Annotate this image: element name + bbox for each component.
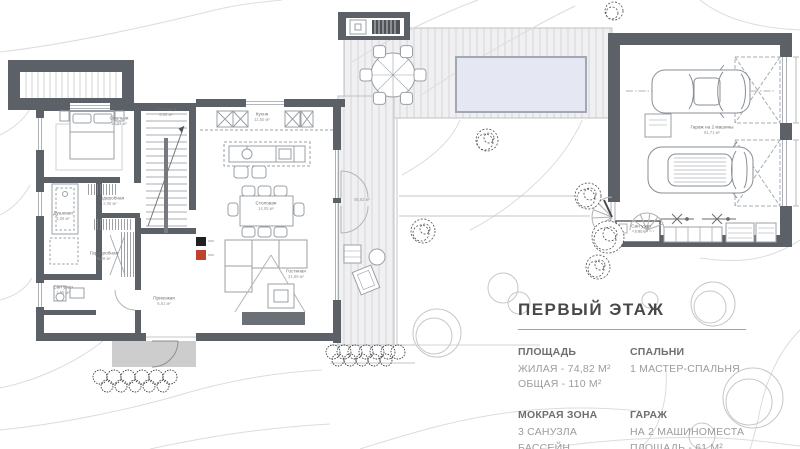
cabinet [756,223,776,242]
marker-leaders [208,241,214,255]
grill [372,20,400,34]
wardrobe-door-swing [115,290,135,310]
room-label-garage: Гараж на 2 машины 61,71 м² [690,124,733,135]
legend-section-area: ПЛОЩАДЬ ЖИЛАЯ - 74,82 М² ОБЩАЯ - 110 М² [518,346,630,392]
room-label-wardrobe-1: Гардеробная 2,06 м² [96,195,124,206]
panel-marker-black [196,237,206,246]
floor-plan-page: Спальня 13,37 м² Лестница 5,06 м² Кухня … [0,0,800,449]
legend-grid: ПЛОЩАДЬ ЖИЛАЯ - 74,82 М² ОБЩАЯ - 110 М² … [518,346,750,449]
stool [252,166,266,178]
room-label-kitchen: Кухня 11,50 м² [254,111,270,122]
room-label-garage-wc: Сан узел 1,61 м² [631,223,651,234]
garden-bed-border [330,345,415,363]
workbench [664,227,722,242]
staircase [146,114,187,233]
legend-section-garage: ГАРАЖ НА 2 МАШИНОМЕСТА ПЛОЩАДЬ - 61 М² [630,409,750,449]
media-wall [242,312,305,325]
stool [234,166,248,178]
outdoor-kitchen [338,12,410,40]
garden-path [399,196,590,216]
legend-divider [518,329,746,330]
garage-cabinet-box [645,114,671,137]
legend-section-bedrooms: СПАЛЬНИ 1 МАСТЕР-СПАЛЬНЯ [630,346,750,392]
room-label-wardrobe-2: Гардеробная 5,08 м² [90,250,118,261]
fireplace-marker-red [196,250,206,260]
page-title: ПЕРВЫЙ ЭТАЖ [518,300,750,320]
car-suv [648,142,753,198]
deck [338,0,612,345]
entry-porch [112,341,196,367]
room-label-bedroom: Спальня 13,37 м² [110,115,129,126]
garage [592,33,799,247]
room-label-stairs: Лестница 5,06 м² [156,106,177,117]
dimension-lines [793,57,799,206]
pool [456,57,586,112]
balcony [8,60,134,110]
room-label-living: Гостиная 21,86 м² [286,268,306,279]
room-label-hallway: Прихожая 5,61 м² [153,295,175,306]
legend-panel: ПЕРВЫЙ ЭТАЖ ПЛОЩАДЬ ЖИЛАЯ - 74,82 М² ОБЩ… [518,300,750,449]
shower-room-fixtures [50,184,78,264]
room-label-wc: Сан узел 1,65 м² [53,284,73,295]
deck-side [338,96,394,345]
legend-section-wet-zone: МОКРАЯ ЗОНА 3 САНУЗЛА БАССЕЙН [518,409,630,449]
deck-area-label: 56,62 м² [354,197,370,202]
cabinet [726,223,754,242]
room-label-shower: Душевая 4,06 м² [53,210,73,221]
kitchen-island [224,142,310,178]
room-label-dining: Столовая 14,05 м² [256,200,277,211]
car-sedan [652,65,750,118]
